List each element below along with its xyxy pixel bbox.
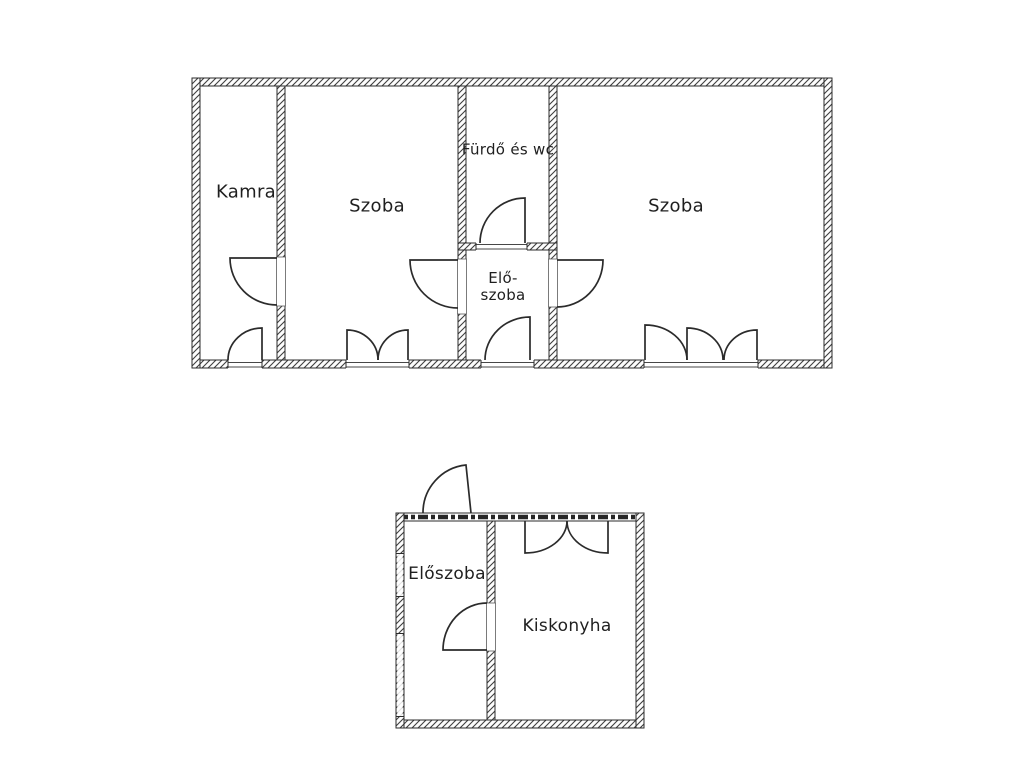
door-eloszoba-to-kiskonyha bbox=[443, 603, 487, 650]
door-szoba-left-to-eloszoba bbox=[410, 260, 458, 308]
wall-kamra-szoba bbox=[277, 86, 285, 360]
door-szoba-left-balcony-left-leaf bbox=[347, 330, 378, 360]
opening-eloszoba-entrance bbox=[481, 359, 534, 369]
annex-building-outline bbox=[396, 465, 644, 728]
annex-wall-bottom bbox=[396, 720, 643, 728]
door-kiskonyha-left-leaf bbox=[525, 521, 567, 553]
room-label-szoba-left: Szoba bbox=[349, 197, 405, 218]
main-building-outline bbox=[192, 78, 832, 369]
room-label-kamra: Kamra bbox=[216, 183, 276, 204]
room-label-furdo-es-wc: Fürdő és wc bbox=[462, 141, 554, 158]
opening-furdo-door bbox=[476, 242, 527, 251]
annex-wall-top bbox=[396, 513, 643, 521]
opening-eloszoba-szoba-right-door bbox=[549, 259, 558, 307]
door-annex-entrance bbox=[423, 465, 471, 513]
room-label-kiskonyha: Kiskonyha bbox=[522, 617, 611, 637]
door-szoba-right-leaf-3 bbox=[724, 330, 757, 360]
room-label-eloszoba-upper: Elő- szoba bbox=[480, 270, 525, 305]
door-eloszoba-to-szoba-right bbox=[557, 260, 603, 307]
main-wall-right bbox=[824, 78, 832, 368]
door-szoba-right-leaf-1 bbox=[645, 325, 687, 360]
main-wall-top bbox=[192, 78, 832, 86]
opening-szoba-eloszoba-door bbox=[458, 259, 467, 314]
door-kamra bbox=[230, 258, 277, 305]
wall-eloszoba-szoba-right bbox=[549, 86, 557, 360]
room-label-eloszoba-upper-line2: szoba bbox=[480, 287, 525, 304]
floor-plan-canvas: Kamra Szoba Fürdő és wc Elő- szoba Szoba… bbox=[0, 0, 1024, 765]
room-label-eloszoba-lower: Előszoba bbox=[408, 565, 486, 585]
opening-kamra-door bbox=[277, 257, 286, 306]
floor-plan-drawing bbox=[0, 0, 1024, 765]
opening-kamra-exterior bbox=[228, 359, 262, 369]
room-label-eloszoba-upper-line1: Elő- bbox=[480, 270, 525, 287]
door-furdo bbox=[480, 198, 525, 243]
room-label-szoba-right: Szoba bbox=[648, 197, 704, 218]
door-szoba-left-balcony-right-leaf bbox=[378, 330, 408, 360]
main-wall-left bbox=[192, 78, 200, 368]
opening-szoba-left-balcony bbox=[346, 359, 409, 369]
opening-szoba-right-balcony bbox=[644, 359, 758, 369]
door-kamra-exterior bbox=[228, 328, 262, 360]
wall-szoba-eloszoba bbox=[458, 86, 466, 360]
door-eloszoba-entrance bbox=[485, 317, 530, 360]
annex-wall-right bbox=[636, 513, 644, 728]
opening-annex-interior-door bbox=[487, 603, 496, 651]
door-szoba-right-leaf-2 bbox=[687, 328, 723, 360]
door-kiskonyha-right-leaf bbox=[567, 521, 608, 553]
